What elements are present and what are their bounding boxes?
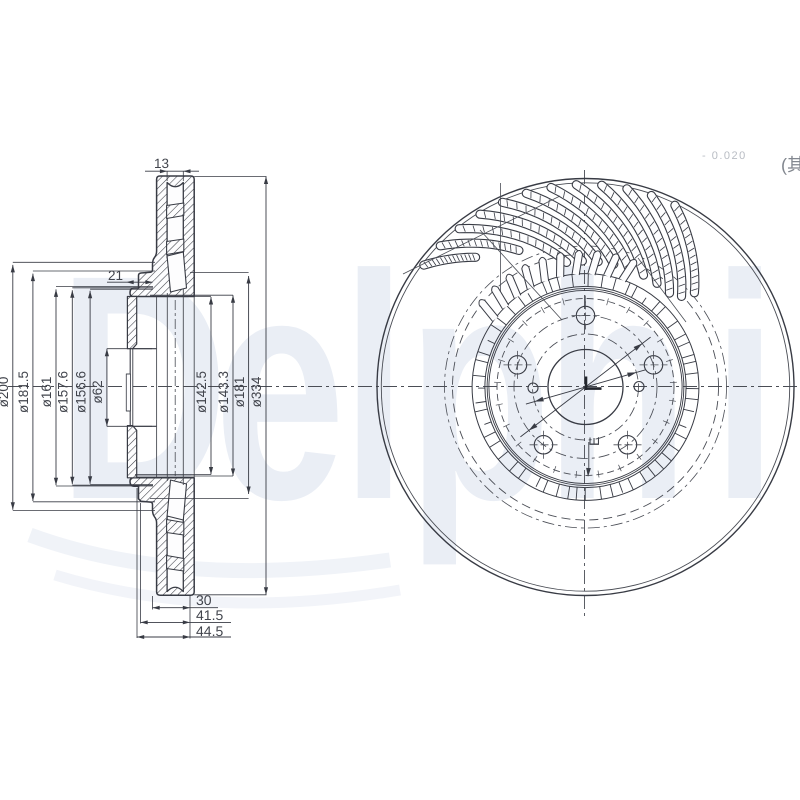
svg-text:ø181.5: ø181.5 — [16, 371, 31, 413]
svg-text:ø142.5: ø142.5 — [194, 371, 209, 413]
svg-text:30: 30 — [196, 592, 212, 608]
svg-text:- 0.020: - 0.020 — [702, 150, 747, 162]
svg-text:ø334: ø334 — [249, 376, 264, 407]
svg-text:21: 21 — [108, 268, 123, 283]
svg-text:41.5: 41.5 — [196, 607, 223, 623]
svg-text:ø200: ø200 — [0, 377, 11, 408]
svg-text:ø181: ø181 — [232, 377, 247, 408]
svg-text:44.5: 44.5 — [196, 623, 223, 639]
svg-text:ø161: ø161 — [39, 377, 54, 408]
svg-text:ø157.6: ø157.6 — [56, 371, 71, 413]
svg-text:ø143.3: ø143.3 — [216, 371, 231, 413]
svg-text:ø62: ø62 — [90, 380, 105, 403]
svg-text:13: 13 — [154, 156, 169, 171]
svg-text:(其: (其 — [781, 155, 800, 175]
svg-text:ø156.6: ø156.6 — [74, 371, 89, 413]
